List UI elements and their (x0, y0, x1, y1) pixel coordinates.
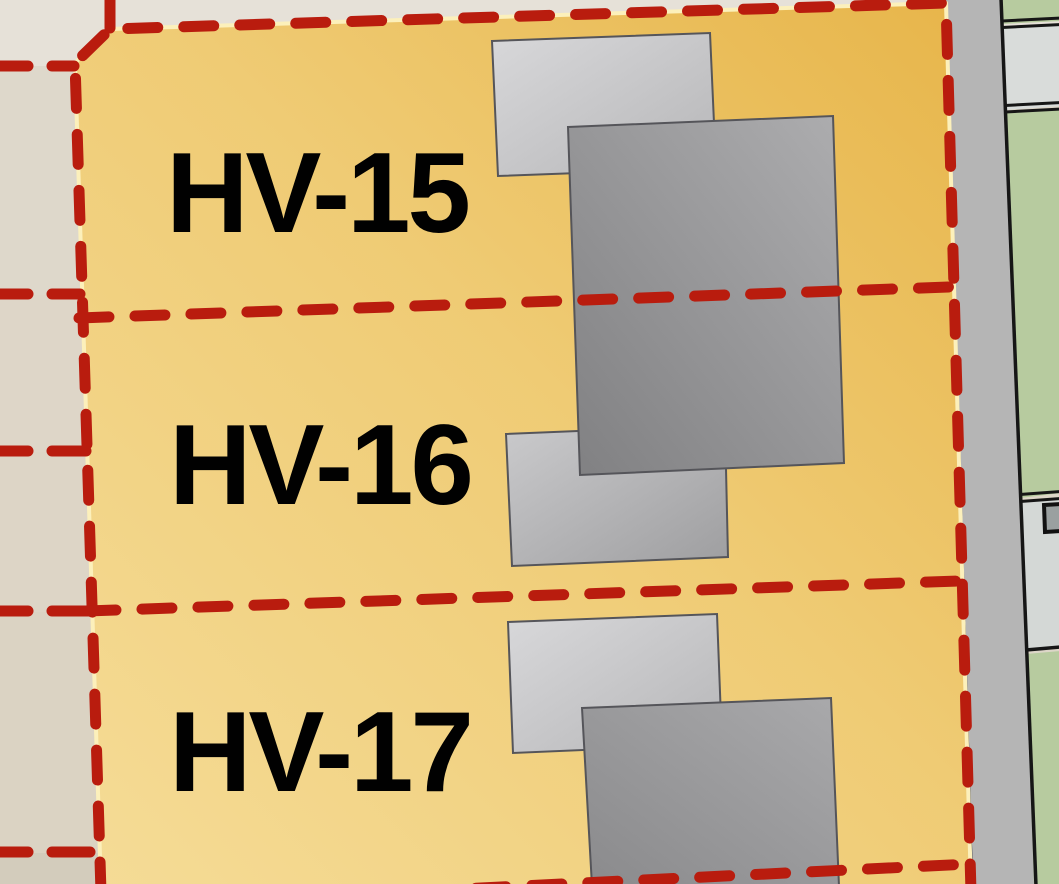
parcel-label-hv15: HV-15 (166, 130, 468, 257)
building-hv17-large (582, 698, 839, 884)
utility-box (1044, 504, 1059, 532)
zoning-map: HV-15 HV-16 HV-17 (0, 0, 1059, 884)
parcel-label-hv17: HV-17 (169, 689, 471, 816)
parcel-labels: HV-15 HV-16 HV-17 (166, 130, 471, 816)
parcel-label-hv16: HV-16 (169, 402, 471, 529)
gray-parcel-upper (1002, 24, 1059, 110)
